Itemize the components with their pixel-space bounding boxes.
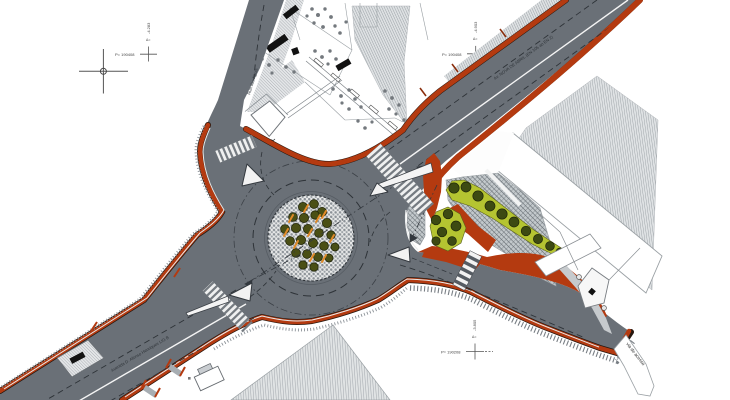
svg-text:-4.903: -4.903 [473,21,478,33]
svg-text:P= 190408: P= 190408 [115,52,135,57]
svg-text:P= 190408: P= 190408 [442,52,462,57]
svg-text:P= 190208: P= 190208 [441,350,461,355]
svg-text:-4.283: -4.283 [146,22,151,34]
svg-text:Δ=: Δ= [146,38,150,42]
svg-text:-3.805: -3.805 [472,319,477,331]
svg-text:Δ=: Δ= [472,335,476,339]
svg-text:Δ=: Δ= [473,37,477,41]
